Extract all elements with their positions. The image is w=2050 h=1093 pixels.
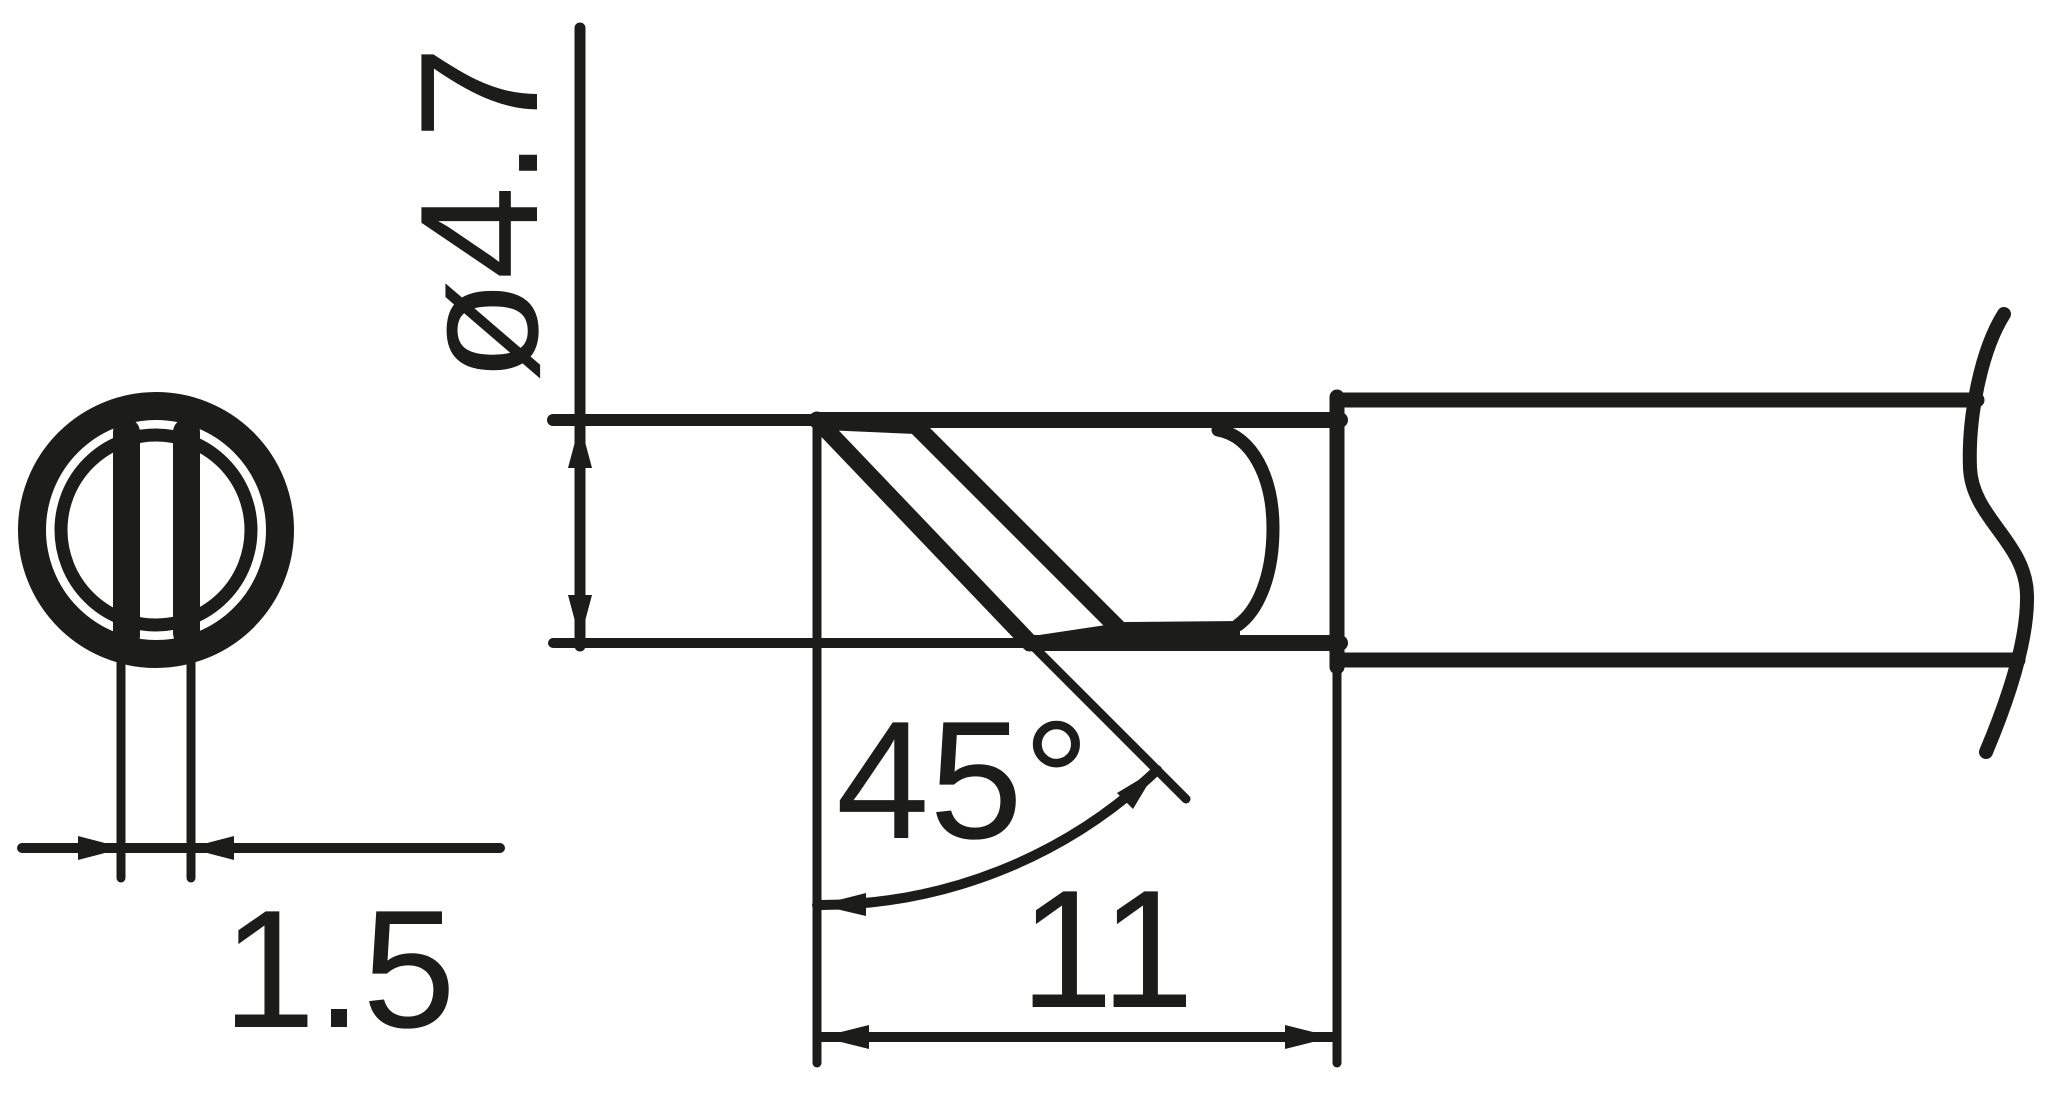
break-line xyxy=(1970,314,2027,752)
tip-inner-circle xyxy=(61,435,251,625)
bevel-angle-label: 45° xyxy=(836,686,1090,874)
dimension-flat-width: 1.5 xyxy=(22,628,500,1063)
bevel-edge-near xyxy=(817,420,1030,643)
sleeve-outer-circle xyxy=(32,406,280,654)
diameter-arrow-up xyxy=(568,423,592,468)
bevel-bottom-face xyxy=(1026,621,1240,651)
bevel-ellipse-curve xyxy=(1218,430,1273,625)
tip-dimension-diagram: ø4.7 1.5 11 45° xyxy=(0,0,2050,1093)
diameter-dimension-label: ø4.7 xyxy=(385,46,573,382)
length-dimension-label: 11 xyxy=(1020,855,1194,1043)
diameter-arrow-down xyxy=(568,595,592,640)
bevel-edge-far xyxy=(918,428,1122,632)
drawing-stage: ø4.7 1.5 11 45° xyxy=(0,0,2050,1093)
angle-arrow-left xyxy=(819,893,866,916)
bevel-top-sliver xyxy=(824,427,916,431)
length-arrow-right xyxy=(1285,1025,1333,1049)
flat-width-dimension-label: 1.5 xyxy=(222,875,456,1063)
front-view xyxy=(32,406,280,654)
length-arrow-left xyxy=(821,1025,869,1049)
